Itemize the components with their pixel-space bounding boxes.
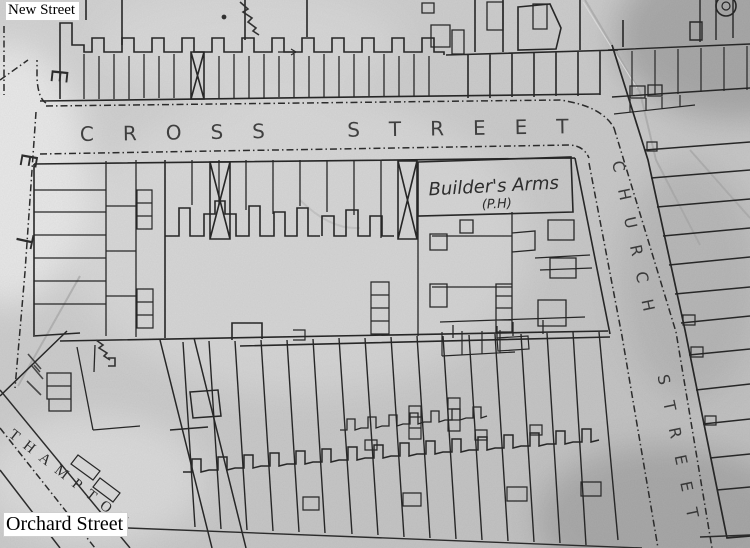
map-canvas: CROSS STREET CHURCH STREET — [0, 0, 750, 548]
orchard-street-caption: Orchard Street — [3, 512, 128, 537]
new-street-caption: New Street — [5, 1, 80, 21]
photo-grain-overlay — [0, 0, 750, 548]
historic-map-photo: CROSS STREET CHURCH STREET — [0, 0, 750, 548]
